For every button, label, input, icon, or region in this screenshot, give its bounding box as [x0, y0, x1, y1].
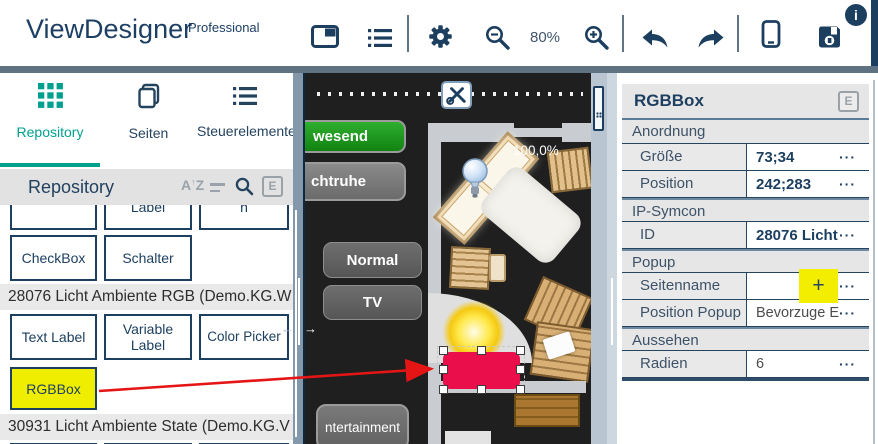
repository-panel-header: Repository A↑Z E [0, 169, 293, 205]
repository-scrollbar-thumb[interactable] [295, 210, 298, 437]
active-tab-underline [0, 163, 100, 167]
scene-button-tv[interactable]: TV [323, 285, 422, 320]
resize-handle-nw[interactable] [439, 346, 448, 355]
resize-handle-w[interactable] [439, 365, 448, 374]
zoom-in-icon[interactable] [583, 24, 610, 56]
resize-handle-sw[interactable] [439, 385, 448, 394]
selected-rgbbox-control[interactable] [443, 352, 520, 389]
tab-steuerelemente[interactable]: Steuerelemente [197, 83, 293, 139]
ellipsis-button[interactable]: ··· [839, 149, 869, 165]
properties-header: RGBBox E [622, 84, 869, 120]
zoom-out-icon[interactable] [484, 24, 511, 56]
property-value-cell[interactable]: 73;34 ··· [746, 144, 869, 170]
scene-button-entertainment[interactable]: ntertainment [316, 404, 409, 444]
repo-item-schalter[interactable]: Schalter [104, 235, 192, 281]
main-divider [0, 66, 878, 73]
property-value[interactable]: Bevorzuge E [747, 305, 839, 321]
resize-handle-e[interactable] [516, 365, 525, 374]
controls-list-icon [232, 86, 258, 107]
properties-edit-badge[interactable]: E [838, 91, 859, 112]
brightness-value: 100,0% [513, 143, 559, 158]
sort-order-icon[interactable] [210, 183, 226, 196]
app-edition: Professional [188, 20, 260, 35]
property-row-seitenname: Seitenname ··· + [622, 273, 869, 300]
repo-item-text-label[interactable]: Text Label [10, 314, 97, 360]
properties-end-bar [622, 378, 869, 381]
resize-handle-ne[interactable] [516, 346, 525, 355]
section-ip-symcon: IP-Symcon [622, 198, 869, 222]
add-page-button[interactable]: + [799, 269, 838, 303]
design-canvas[interactable]: 100,0% wesend chtruhe Normal TV ntertain… [303, 73, 591, 444]
properties-content: RGBBox E Anordnung Größe 73;34 ··· Posit… [622, 84, 869, 381]
property-row-id: ID 28076 Licht ··· [622, 222, 869, 249]
scene-button-normal[interactable]: Normal [323, 242, 422, 278]
ellipsis-button[interactable]: ··· [839, 176, 869, 192]
info-icon[interactable]: i [845, 4, 867, 26]
property-value-cell[interactable]: Bevorzuge E ··· [746, 300, 869, 326]
property-row-position: Position 242;283 ··· [622, 171, 869, 198]
ellipsis-button[interactable]: ··· [839, 278, 869, 294]
expand-right-arrow-icon[interactable]: → [304, 321, 317, 336]
toolbar-separator [407, 15, 409, 52]
seat-furniture [489, 254, 506, 282]
list-view-icon[interactable] [367, 28, 393, 53]
section-anordnung: Anordnung [622, 120, 869, 144]
repo-group-header-rgb: 28076 Licht Ambiente RGB (Demo.KG.W [0, 284, 293, 310]
repo-group-header-state: 30931 Licht Ambiente State (Demo.KG.V [0, 414, 293, 440]
canvas-scrollbar-thumb[interactable] [593, 86, 604, 131]
toolbar-separator [622, 15, 624, 52]
repo-item-color-picker[interactable]: Color Picker [199, 314, 289, 360]
canvas-scrollbar[interactable] [591, 73, 607, 444]
property-row-position-popup: Position Popup Bevorzuge E ··· [622, 300, 869, 327]
wood-floor [514, 394, 580, 427]
property-label: Position [622, 171, 746, 197]
property-row-groesse: Größe 73;34 ··· [622, 144, 869, 171]
property-value[interactable]: 242;283 [747, 176, 839, 193]
tab-steuerelemente-label: Steuerelemente [197, 123, 293, 139]
edit-mode-badge[interactable]: E [262, 176, 283, 197]
properties-scrollbar-track [873, 80, 875, 444]
property-label: Position Popup [622, 300, 746, 326]
save-icon[interactable] [817, 25, 842, 54]
resize-handle-s[interactable] [477, 385, 486, 394]
resize-handle-n[interactable] [477, 346, 486, 355]
ellipsis-button[interactable]: ··· [839, 356, 869, 372]
wall-segment [514, 128, 562, 137]
pages-icon [136, 83, 162, 109]
property-row-radien: Radien 6 ··· [622, 351, 869, 378]
layout-panels-icon[interactable] [311, 25, 339, 53]
repository-panel-title: Repository [28, 169, 114, 205]
property-label: ID [622, 222, 746, 248]
repo-item-variable-label[interactable]: Variable Label [104, 314, 192, 360]
property-value[interactable]: 73;34 [747, 149, 839, 166]
repo-item-button[interactable]: n [199, 205, 289, 230]
property-value[interactable]: 6 [747, 356, 839, 372]
tab-repository[interactable]: Repository [0, 83, 100, 140]
scene-button-presence[interactable]: wesend [303, 120, 406, 153]
properties-panel: RGBBox E Anordnung Größe 73;34 ··· Posit… [617, 73, 878, 444]
right-splitter[interactable] [607, 73, 617, 444]
repo-item-rgbbox[interactable]: RGBBox [10, 367, 97, 410]
section-aussehen: Aussehen [622, 327, 869, 351]
ellipsis-button[interactable]: ··· [839, 227, 869, 243]
zoom-level[interactable]: 80% [524, 29, 566, 46]
property-label: Radien [622, 351, 746, 377]
settings-gear-icon[interactable] [427, 23, 454, 55]
search-icon[interactable] [235, 177, 254, 201]
chair-furniture [449, 246, 491, 290]
scrollbar-grip [596, 112, 602, 118]
property-value-cell[interactable]: 6 ··· [746, 351, 869, 377]
repository-list: Label n CheckBox Schalter 28076 Licht Am… [0, 205, 293, 444]
toolbar: ViewDesigner Professional 80% i [0, 0, 878, 66]
property-value-cell[interactable]: 28076 Licht ··· [746, 222, 869, 248]
toolbar-right-edge [871, 0, 878, 66]
tab-repository-label: Repository [0, 124, 100, 140]
mobile-preview-icon[interactable] [760, 20, 782, 53]
property-value-cell[interactable]: 242;283 ··· [746, 171, 869, 197]
property-label: Seitenname [622, 273, 746, 299]
app-title: ViewDesigner [26, 14, 192, 45]
repo-item-clipped[interactable] [10, 205, 97, 230]
toolbar-separator [737, 15, 739, 52]
wall-segment [562, 123, 591, 142]
tab-seiten-label: Seiten [100, 125, 197, 141]
grid-icon [38, 83, 63, 108]
page-tools-icon[interactable] [441, 81, 472, 109]
left-splitter-handle[interactable] [298, 278, 300, 345]
left-panel: Repository Seiten Steuerelemente Reposit… [0, 73, 293, 444]
ellipsis-button[interactable]: ··· [839, 305, 869, 321]
resize-handle-se[interactable] [516, 385, 525, 394]
repo-item-checkbox[interactable]: CheckBox [10, 235, 97, 281]
collapse-left-arrow-icon[interactable]: ← [281, 321, 294, 336]
undo-icon[interactable] [640, 28, 670, 54]
scene-button-night[interactable]: chtruhe [303, 162, 406, 201]
right-splitter-handle[interactable] [611, 278, 613, 345]
property-value[interactable]: 28076 Licht [747, 227, 839, 244]
floor-decor [445, 431, 491, 444]
sort-alpha-icon[interactable]: A↑Z [181, 177, 204, 193]
left-splitter[interactable] [293, 73, 303, 444]
redo-icon[interactable] [696, 28, 726, 54]
property-label: Größe [622, 144, 746, 170]
repo-item-label[interactable]: Label [104, 205, 192, 230]
selected-control-name: RGBBox [634, 84, 704, 118]
tab-seiten[interactable]: Seiten [100, 83, 197, 141]
light-bulb-icon [460, 157, 490, 208]
